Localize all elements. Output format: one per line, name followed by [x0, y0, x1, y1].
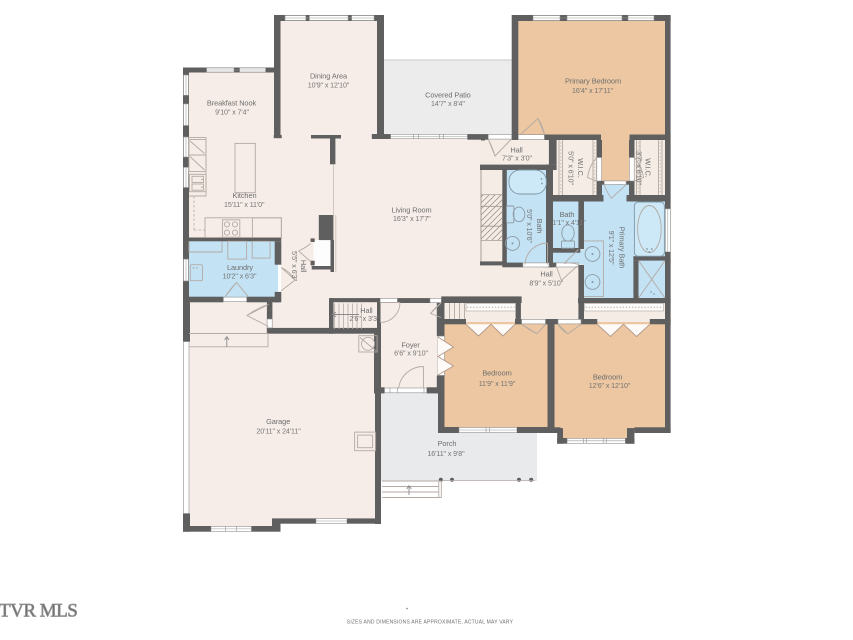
svg-text:5'5" x 6'3": 5'5" x 6'3"	[290, 251, 298, 281]
svg-text:12'6" x 12'10": 12'6" x 12'10"	[589, 382, 631, 390]
svg-text:16'4" x 17'11": 16'4" x 17'11"	[572, 87, 614, 95]
svg-text:Porch: Porch	[438, 439, 457, 448]
svg-text:16'3" x 17'7": 16'3" x 17'7"	[393, 215, 431, 223]
svg-text:6'6" x 9'10": 6'6" x 9'10"	[394, 349, 428, 357]
svg-text:Bath: Bath	[560, 210, 575, 219]
svg-text:Bath: Bath	[535, 219, 544, 234]
svg-text:Primary Bath: Primary Bath	[618, 227, 627, 269]
svg-text:20'11" x 24'11": 20'11" x 24'11"	[256, 428, 301, 436]
svg-text:Breakfast Nook: Breakfast Nook	[207, 99, 257, 108]
svg-text:TVR MLS: TVR MLS	[0, 601, 77, 622]
svg-text:9'1" x 12'5": 9'1" x 12'5"	[607, 231, 615, 265]
svg-text:10'2" x 6'3": 10'2" x 6'3"	[223, 273, 257, 281]
svg-text:W.I.C.: W.I.C.	[644, 158, 653, 178]
svg-text:5'0" x 10'6": 5'0" x 10'6"	[525, 209, 533, 243]
svg-text:15'11" x 11'0": 15'11" x 11'0"	[224, 201, 265, 209]
svg-text:Covered Patio: Covered Patio	[425, 91, 471, 100]
svg-text:1'1" x 4'11": 1'1" x 4'11"	[552, 219, 586, 227]
svg-text:16'11" x 9'8": 16'11" x 9'8"	[427, 450, 465, 458]
svg-text:Hall: Hall	[540, 269, 553, 278]
svg-text:5'0" x 6'10": 5'0" x 6'10"	[567, 151, 575, 185]
svg-text:Garage: Garage	[266, 417, 290, 426]
svg-text:10'9" x 12'10": 10'9" x 12'10"	[308, 81, 350, 89]
svg-text:3'7" x 6'10": 3'7" x 6'10"	[635, 151, 643, 185]
svg-text:Primary Bedroom: Primary Bedroom	[565, 76, 621, 85]
svg-text:8'9" x 5'10": 8'9" x 5'10"	[529, 279, 563, 287]
svg-text:9'10" x 7'4": 9'10" x 7'4"	[215, 108, 249, 116]
svg-text:Laundry: Laundry	[227, 263, 253, 272]
svg-text:Hall: Hall	[510, 146, 523, 155]
svg-text:Dining Area: Dining Area	[310, 71, 348, 80]
svg-text:14'7" x 8'4": 14'7" x 8'4"	[431, 100, 465, 108]
svg-text:SIZES AND DIMENSIONS ARE APPRO: SIZES AND DIMENSIONS ARE APPROXIMATE, AC…	[347, 620, 514, 626]
svg-text:Bedroom: Bedroom	[593, 373, 622, 382]
svg-text:Living Room: Living Room	[392, 205, 432, 214]
svg-text:W.I.C.: W.I.C.	[576, 158, 585, 178]
svg-text:Hall: Hall	[360, 306, 373, 315]
svg-text:Foyer: Foyer	[401, 341, 420, 350]
svg-text:Kitchen: Kitchen	[233, 191, 257, 200]
svg-text:2'6" x 3'3": 2'6" x 3'3"	[349, 315, 379, 323]
svg-text:Bedroom: Bedroom	[482, 369, 511, 378]
svg-text:7'3" x 3'0": 7'3" x 3'0"	[502, 155, 532, 163]
svg-text:Hall: Hall	[299, 260, 308, 273]
svg-text:11'9" x 11'9": 11'9" x 11'9"	[479, 380, 516, 388]
